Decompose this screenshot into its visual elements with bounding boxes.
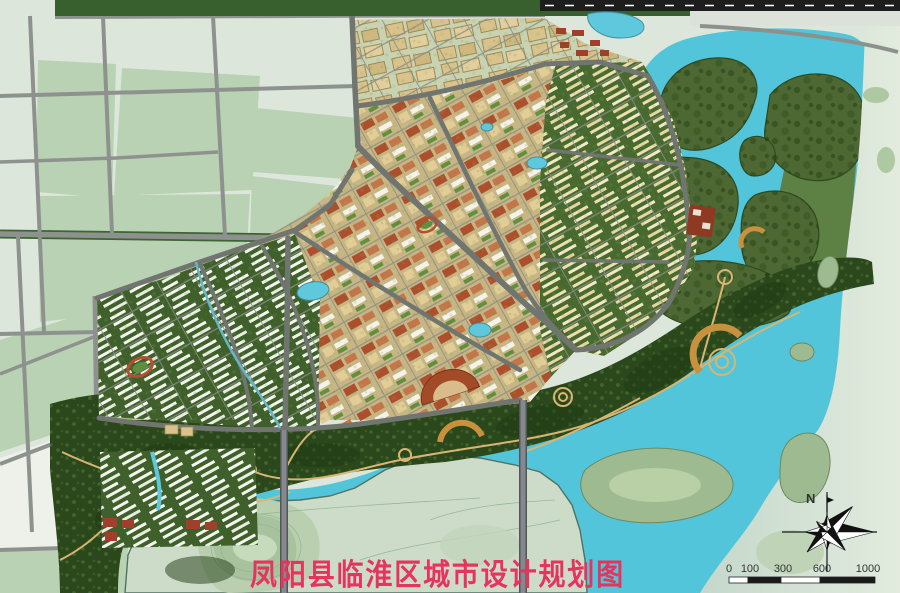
planning-map: N 0 100 300 600 1000 凤阳县临淮区城市设计规划图: [0, 0, 900, 593]
scale-label-100: 100: [741, 563, 759, 575]
highway-verge: [690, 11, 900, 26]
scale-label-0: 0: [726, 563, 732, 575]
scale-label-1000: 1000: [856, 563, 880, 575]
planning-map-screenshot: N 0 100 300 600 1000 凤阳县临淮区城市设计规划图: [0, 0, 900, 593]
map-title: 凤阳县临淮区城市设计规划图: [250, 558, 625, 592]
highway: [540, 0, 900, 11]
campus-landmark: [686, 204, 716, 237]
scale-label-600: 600: [813, 563, 831, 575]
north-label: N: [806, 491, 816, 506]
scale-label-300: 300: [774, 563, 792, 575]
